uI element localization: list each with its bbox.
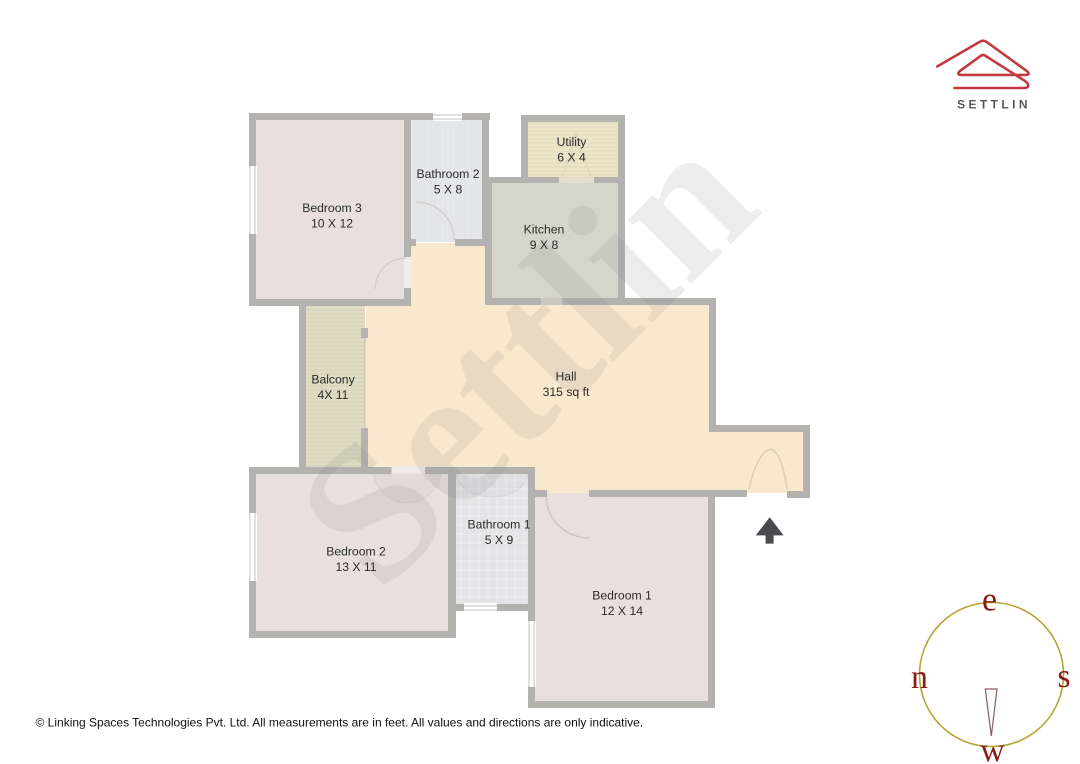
svg-text:4X 11: 4X 11 [318,388,349,402]
svg-text:Bathroom 1: Bathroom 1 [467,518,530,532]
svg-text:Bedroom 3: Bedroom 3 [302,201,362,215]
svg-text:e: e [982,582,997,619]
svg-text:315 sq ft: 315 sq ft [543,385,590,399]
svg-text:SETTLIN: SETTLIN [957,98,1031,112]
svg-text:w: w [980,732,1005,764]
svg-text:Balcony: Balcony [311,373,355,387]
svg-text:Bedroom 2: Bedroom 2 [326,545,386,559]
svg-text:s: s [1057,658,1070,695]
svg-text:Hall: Hall [556,370,577,384]
svg-text:Bedroom 1: Bedroom 1 [592,589,652,603]
svg-text:5 X 9: 5 X 9 [485,533,514,547]
svg-text:6 X 4: 6 X 4 [557,151,586,165]
svg-text:n: n [911,659,928,696]
svg-text:Utility: Utility [557,135,588,149]
svg-text:© Linking Spaces Technologies: © Linking Spaces Technologies Pvt. Ltd. … [36,716,644,730]
svg-text:9 X 8: 9 X 8 [530,238,559,252]
svg-text:12 X 14: 12 X 14 [601,604,643,618]
svg-text:13 X 11: 13 X 11 [335,560,376,574]
svg-text:10 X 12: 10 X 12 [311,217,353,231]
svg-text:5 X 8: 5 X 8 [434,183,463,197]
svg-text:Bathroom 2: Bathroom 2 [416,167,479,181]
svg-text:Kitchen: Kitchen [524,223,565,237]
